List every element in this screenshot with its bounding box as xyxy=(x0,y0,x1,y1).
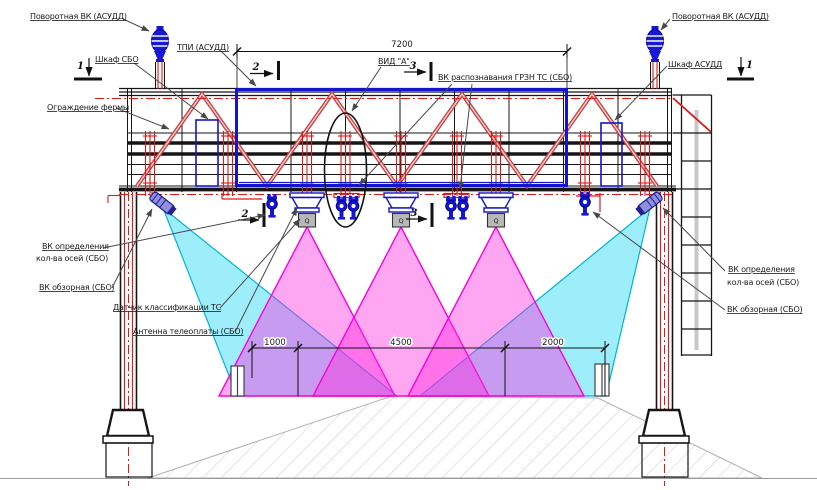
ptz-camera-right-icon xyxy=(647,26,664,89)
section-1-right: 1 xyxy=(746,60,753,71)
label-axle-camera-left-1: ВК определения xyxy=(42,242,109,251)
dim-4500-value: 4500 xyxy=(390,338,412,348)
section-3-bottom: 3 xyxy=(411,208,418,219)
label-toll-antenna: Антенна телеоплаты (СБО) xyxy=(133,327,243,336)
label-ptz-camera-left: Поворотная ВК (АСУДД) xyxy=(30,12,127,21)
axle-camera-left-icon xyxy=(222,193,277,218)
section-3-top: 3 xyxy=(410,61,417,72)
gantry-scheme-drawing: Q xyxy=(0,0,817,490)
label-axle-camera-right-1: ВК определения xyxy=(728,265,795,274)
label-overview-camera-left: ВК обзорная (СБО) xyxy=(39,283,115,292)
dim-2000-value: 2000 xyxy=(542,338,564,348)
section-2-top: 2 xyxy=(252,62,260,73)
label-tpi: ТПИ (АСУДД) xyxy=(176,43,229,52)
cable-ladder xyxy=(673,95,712,356)
anpr-camera-pair-2 xyxy=(444,194,469,220)
label-truss-fence: Ограждение фермы xyxy=(47,103,129,112)
gantry-truss xyxy=(95,88,676,196)
label-axle-camera-left-2: кол-ва осей (СБО) xyxy=(36,254,108,263)
anpr-camera-pair-1 xyxy=(334,194,359,220)
toll-antenna-3-icon xyxy=(479,193,513,227)
ptz-camera-left-icon xyxy=(152,26,169,89)
axle-camera-right-icon xyxy=(576,192,600,216)
label-overview-camera-right: ВК обзорная (СБО) xyxy=(727,305,803,314)
dimension-7200 xyxy=(233,44,571,89)
engineering-drawing-canvas: Q xyxy=(0,0,817,490)
toll-antenna-1-icon xyxy=(290,193,324,227)
label-anpr-camera: ВК распознавания ГРЗН ТС (СБО) xyxy=(438,73,572,82)
toll-antenna-beams xyxy=(219,227,584,396)
label-axle-camera-right-2: кол-ва осей (СБО) xyxy=(727,278,799,287)
dim-1000-value: 1000 xyxy=(264,338,286,348)
section-1-left: 1 xyxy=(77,61,84,72)
label-view-a: ВИД "А" xyxy=(378,57,410,66)
label-cabinet-sbo: Шкаф СБО xyxy=(95,55,138,64)
label-cabinet-asudd: Шкаф АСУДД xyxy=(668,60,722,69)
dim-7200-value: 7200 xyxy=(391,40,413,50)
label-classification-sensor: Датчик классификации ТС xyxy=(113,303,222,312)
label-ptz-camera-right: Поворотная ВК (АСУДД) xyxy=(672,12,769,21)
